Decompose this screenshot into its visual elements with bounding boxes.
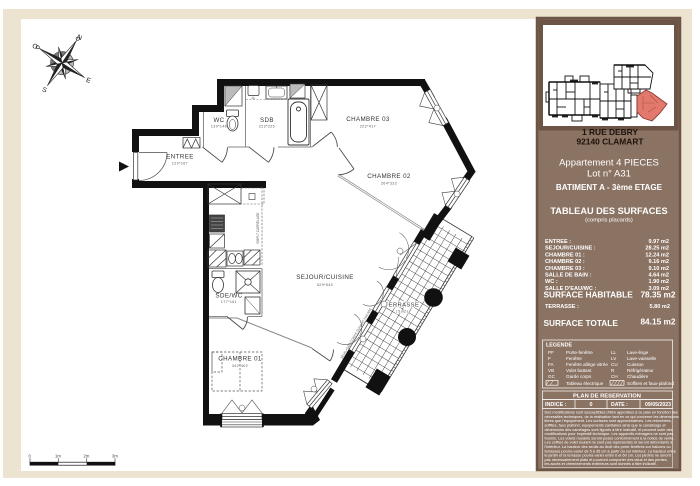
svg-text:CHAMBRE 03 :: CHAMBRE 03 : <box>545 266 585 272</box>
svg-text:SALLE DE BAIN :: SALLE DE BAIN : <box>545 273 591 279</box>
svg-text:9.97 m2: 9.97 m2 <box>648 239 669 245</box>
svg-text:PF: PF <box>548 350 554 355</box>
svg-text:Réfrigérateur: Réfrigérateur <box>627 368 654 373</box>
svg-text:4.64 m2: 4.64 m2 <box>648 273 669 279</box>
svg-text:SURFACE HABITABLE: SURFACE HABITABLE <box>544 290 634 300</box>
svg-text:ENTREE :: ENTREE : <box>545 239 571 245</box>
svg-text:BATIMENT A - 3ème ETAGE: BATIMENT A - 3ème ETAGE <box>556 183 663 192</box>
svg-text:177*161: 177*161 <box>221 300 237 304</box>
svg-text:(compris placards): (compris placards) <box>585 218 633 224</box>
svg-text:INDICE :: INDICE : <box>545 402 567 408</box>
svg-text:TERRASSE :: TERRASSE : <box>545 304 579 310</box>
svg-text:Porte-fenêtre: Porte-fenêtre <box>566 350 593 355</box>
svg-text:0: 0 <box>590 402 593 408</box>
svg-text:2m: 2m <box>84 454 90 459</box>
svg-text:SDE/WC: SDE/WC <box>215 293 242 300</box>
svg-text:CHAMBRE 02 :: CHAMBRE 02 : <box>545 259 585 265</box>
svg-text:GC: GC <box>548 374 556 379</box>
svg-text:9.16 m2: 9.16 m2 <box>648 259 669 265</box>
svg-text:PLAN DE RESERVATION: PLAN DE RESERVATION <box>573 393 641 399</box>
svg-text:TABLEAU DES SURFACES: TABLEAU DES SURFACES <box>550 206 667 216</box>
svg-text:Garde corps: Garde corps <box>566 374 592 379</box>
svg-text:SEJOUR/CUISINE: SEJOUR/CUISINE <box>296 274 354 281</box>
svg-text:Fenêtre allège vitrée: Fenêtre allège vitrée <box>566 362 608 367</box>
svg-text:LL: LL <box>611 350 617 355</box>
svg-text:120*167: 120*167 <box>172 162 188 166</box>
svg-text:130*146: 130*146 <box>211 125 227 129</box>
svg-text:WC :: WC : <box>545 279 558 285</box>
svg-text:SDB: SDB <box>260 117 274 124</box>
svg-text:F: F <box>548 356 551 361</box>
svg-text:( 5 m2 ): ( 5 m2 ) <box>396 310 408 314</box>
svg-text:Chaudière: Chaudière <box>627 374 649 379</box>
svg-text:3m: 3m <box>112 454 118 459</box>
svg-text:12.24 m2: 12.24 m2 <box>645 252 669 258</box>
svg-text:342*402: 342*402 <box>232 364 248 368</box>
svg-text:SEJOUR/CUISINE :: SEJOUR/CUISINE : <box>545 246 596 252</box>
svg-text:LEGENDE: LEGENDE <box>546 343 572 349</box>
svg-text:Appartement 4 PIECES: Appartement 4 PIECES <box>559 158 659 169</box>
svg-text:78.35 m2: 78.35 m2 <box>640 290 675 300</box>
svg-text:ENTREE: ENTREE <box>166 154 194 161</box>
svg-text:Fenêtre: Fenêtre <box>566 356 582 361</box>
svg-text:DATE :: DATE : <box>611 402 628 408</box>
svg-text:Lave-linge: Lave-linge <box>627 350 649 355</box>
svg-text:CHAMBRE 01: CHAMBRE 01 <box>218 356 262 363</box>
svg-text:Soffites et faux-plafond: Soffites et faux-plafond <box>627 381 674 386</box>
svg-text:CHAMBRE 02: CHAMBRE 02 <box>367 173 411 180</box>
svg-text:SURFACE TOTALE: SURFACE TOTALE <box>544 318 619 328</box>
svg-text:09/05/2023: 09/05/2023 <box>645 402 671 408</box>
svg-text:84.15 m2: 84.15 m2 <box>640 317 675 327</box>
svg-text:222*417: 222*417 <box>360 125 376 129</box>
svg-text:les accès et cheminements exté: les accès et cheminements extérieurs son… <box>545 462 657 466</box>
svg-text:9.10 m2: 9.10 m2 <box>648 266 669 272</box>
svg-text:Lot n° A31: Lot n° A31 <box>587 169 631 180</box>
svg-text:222*225: 222*225 <box>259 125 275 129</box>
svg-text:1m: 1m <box>55 454 61 459</box>
svg-text:264*333: 264*333 <box>381 182 397 186</box>
svg-text:CHAMBRE 03: CHAMBRE 03 <box>346 116 390 123</box>
svg-text:TERRASSE: TERRASSE <box>385 303 419 309</box>
svg-text:CH: CH <box>611 374 618 379</box>
svg-text:28.25 m2: 28.25 m2 <box>645 246 669 252</box>
svg-text:1 RUE DEBRY: 1 RUE DEBRY <box>582 127 638 137</box>
svg-text:Tableau électrique: Tableau électrique <box>566 381 604 386</box>
svg-text:5.80 m2: 5.80 m2 <box>649 304 670 310</box>
svg-text:CHAMBRE 01 :: CHAMBRE 01 : <box>545 252 585 258</box>
svg-text:92140 CLAMART: 92140 CLAMART <box>576 137 644 147</box>
svg-text:EMPLT CARRELAGE: EMPLT CARRELAGE <box>256 213 260 244</box>
svg-text:WC: WC <box>213 117 224 124</box>
svg-text:529*543: 529*543 <box>317 283 333 287</box>
svg-text:Cuisson: Cuisson <box>627 362 644 367</box>
svg-text:Volet battant: Volet battant <box>566 368 592 373</box>
svg-text:Lave-vaisselle: Lave-vaisselle <box>627 356 657 361</box>
svg-text:FA: FA <box>548 362 555 367</box>
svg-text:1.90 m2: 1.90 m2 <box>648 279 669 285</box>
svg-text:CU: CU <box>611 362 618 367</box>
svg-text:VB: VB <box>548 368 554 373</box>
